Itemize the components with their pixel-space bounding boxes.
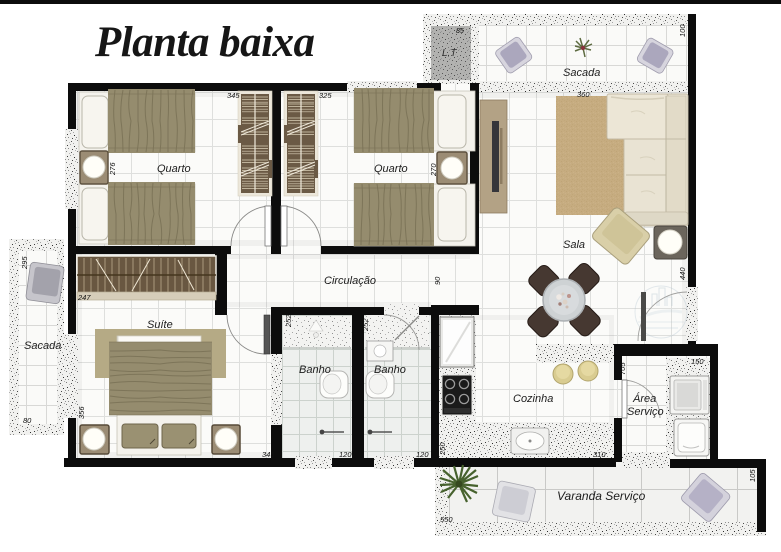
svg-text:440: 440 bbox=[678, 267, 687, 280]
svg-text:Suíte: Suíte bbox=[147, 319, 173, 331]
svg-text:360: 360 bbox=[577, 90, 590, 99]
svg-text:252: 252 bbox=[361, 318, 370, 332]
svg-text:356: 356 bbox=[77, 406, 86, 419]
svg-text:120: 120 bbox=[339, 450, 352, 459]
svg-text:Sacada: Sacada bbox=[24, 340, 61, 352]
svg-text:Varanda Serviço: Varanda Serviço bbox=[557, 489, 646, 503]
svg-text:85: 85 bbox=[456, 28, 464, 35]
svg-text:Sacada: Sacada bbox=[563, 67, 600, 79]
svg-text:80: 80 bbox=[23, 416, 32, 425]
svg-text:Serviço: Serviço bbox=[627, 406, 664, 418]
svg-text:295: 295 bbox=[20, 256, 29, 270]
svg-text:Banho: Banho bbox=[299, 364, 331, 376]
svg-text:100: 100 bbox=[678, 24, 687, 37]
svg-text:252: 252 bbox=[284, 314, 293, 328]
svg-text:L.T: L.T bbox=[442, 48, 457, 59]
svg-text:276: 276 bbox=[108, 162, 117, 176]
svg-text:270: 270 bbox=[429, 163, 438, 177]
svg-text:250: 250 bbox=[438, 442, 447, 456]
svg-text:705: 705 bbox=[618, 362, 627, 375]
svg-text:550: 550 bbox=[440, 515, 453, 524]
svg-text:345: 345 bbox=[262, 450, 275, 459]
svg-text:310: 310 bbox=[593, 450, 606, 459]
svg-text:120: 120 bbox=[416, 450, 429, 459]
svg-text:Banho: Banho bbox=[374, 364, 406, 376]
svg-text:Cozinha: Cozinha bbox=[513, 393, 553, 405]
svg-text:247: 247 bbox=[77, 293, 91, 302]
svg-text:345: 345 bbox=[227, 91, 240, 100]
svg-text:325: 325 bbox=[319, 91, 332, 100]
svg-text:150: 150 bbox=[691, 357, 704, 366]
svg-text:Quarto: Quarto bbox=[374, 163, 408, 175]
svg-text:Sala: Sala bbox=[563, 239, 585, 251]
svg-text:Área: Área bbox=[632, 392, 656, 405]
svg-text:105: 105 bbox=[748, 469, 757, 482]
svg-text:Circulação: Circulação bbox=[324, 275, 376, 287]
svg-text:Planta baixa: Planta baixa bbox=[94, 19, 315, 66]
svg-text:90: 90 bbox=[433, 276, 442, 285]
svg-text:Quarto: Quarto bbox=[157, 163, 191, 175]
